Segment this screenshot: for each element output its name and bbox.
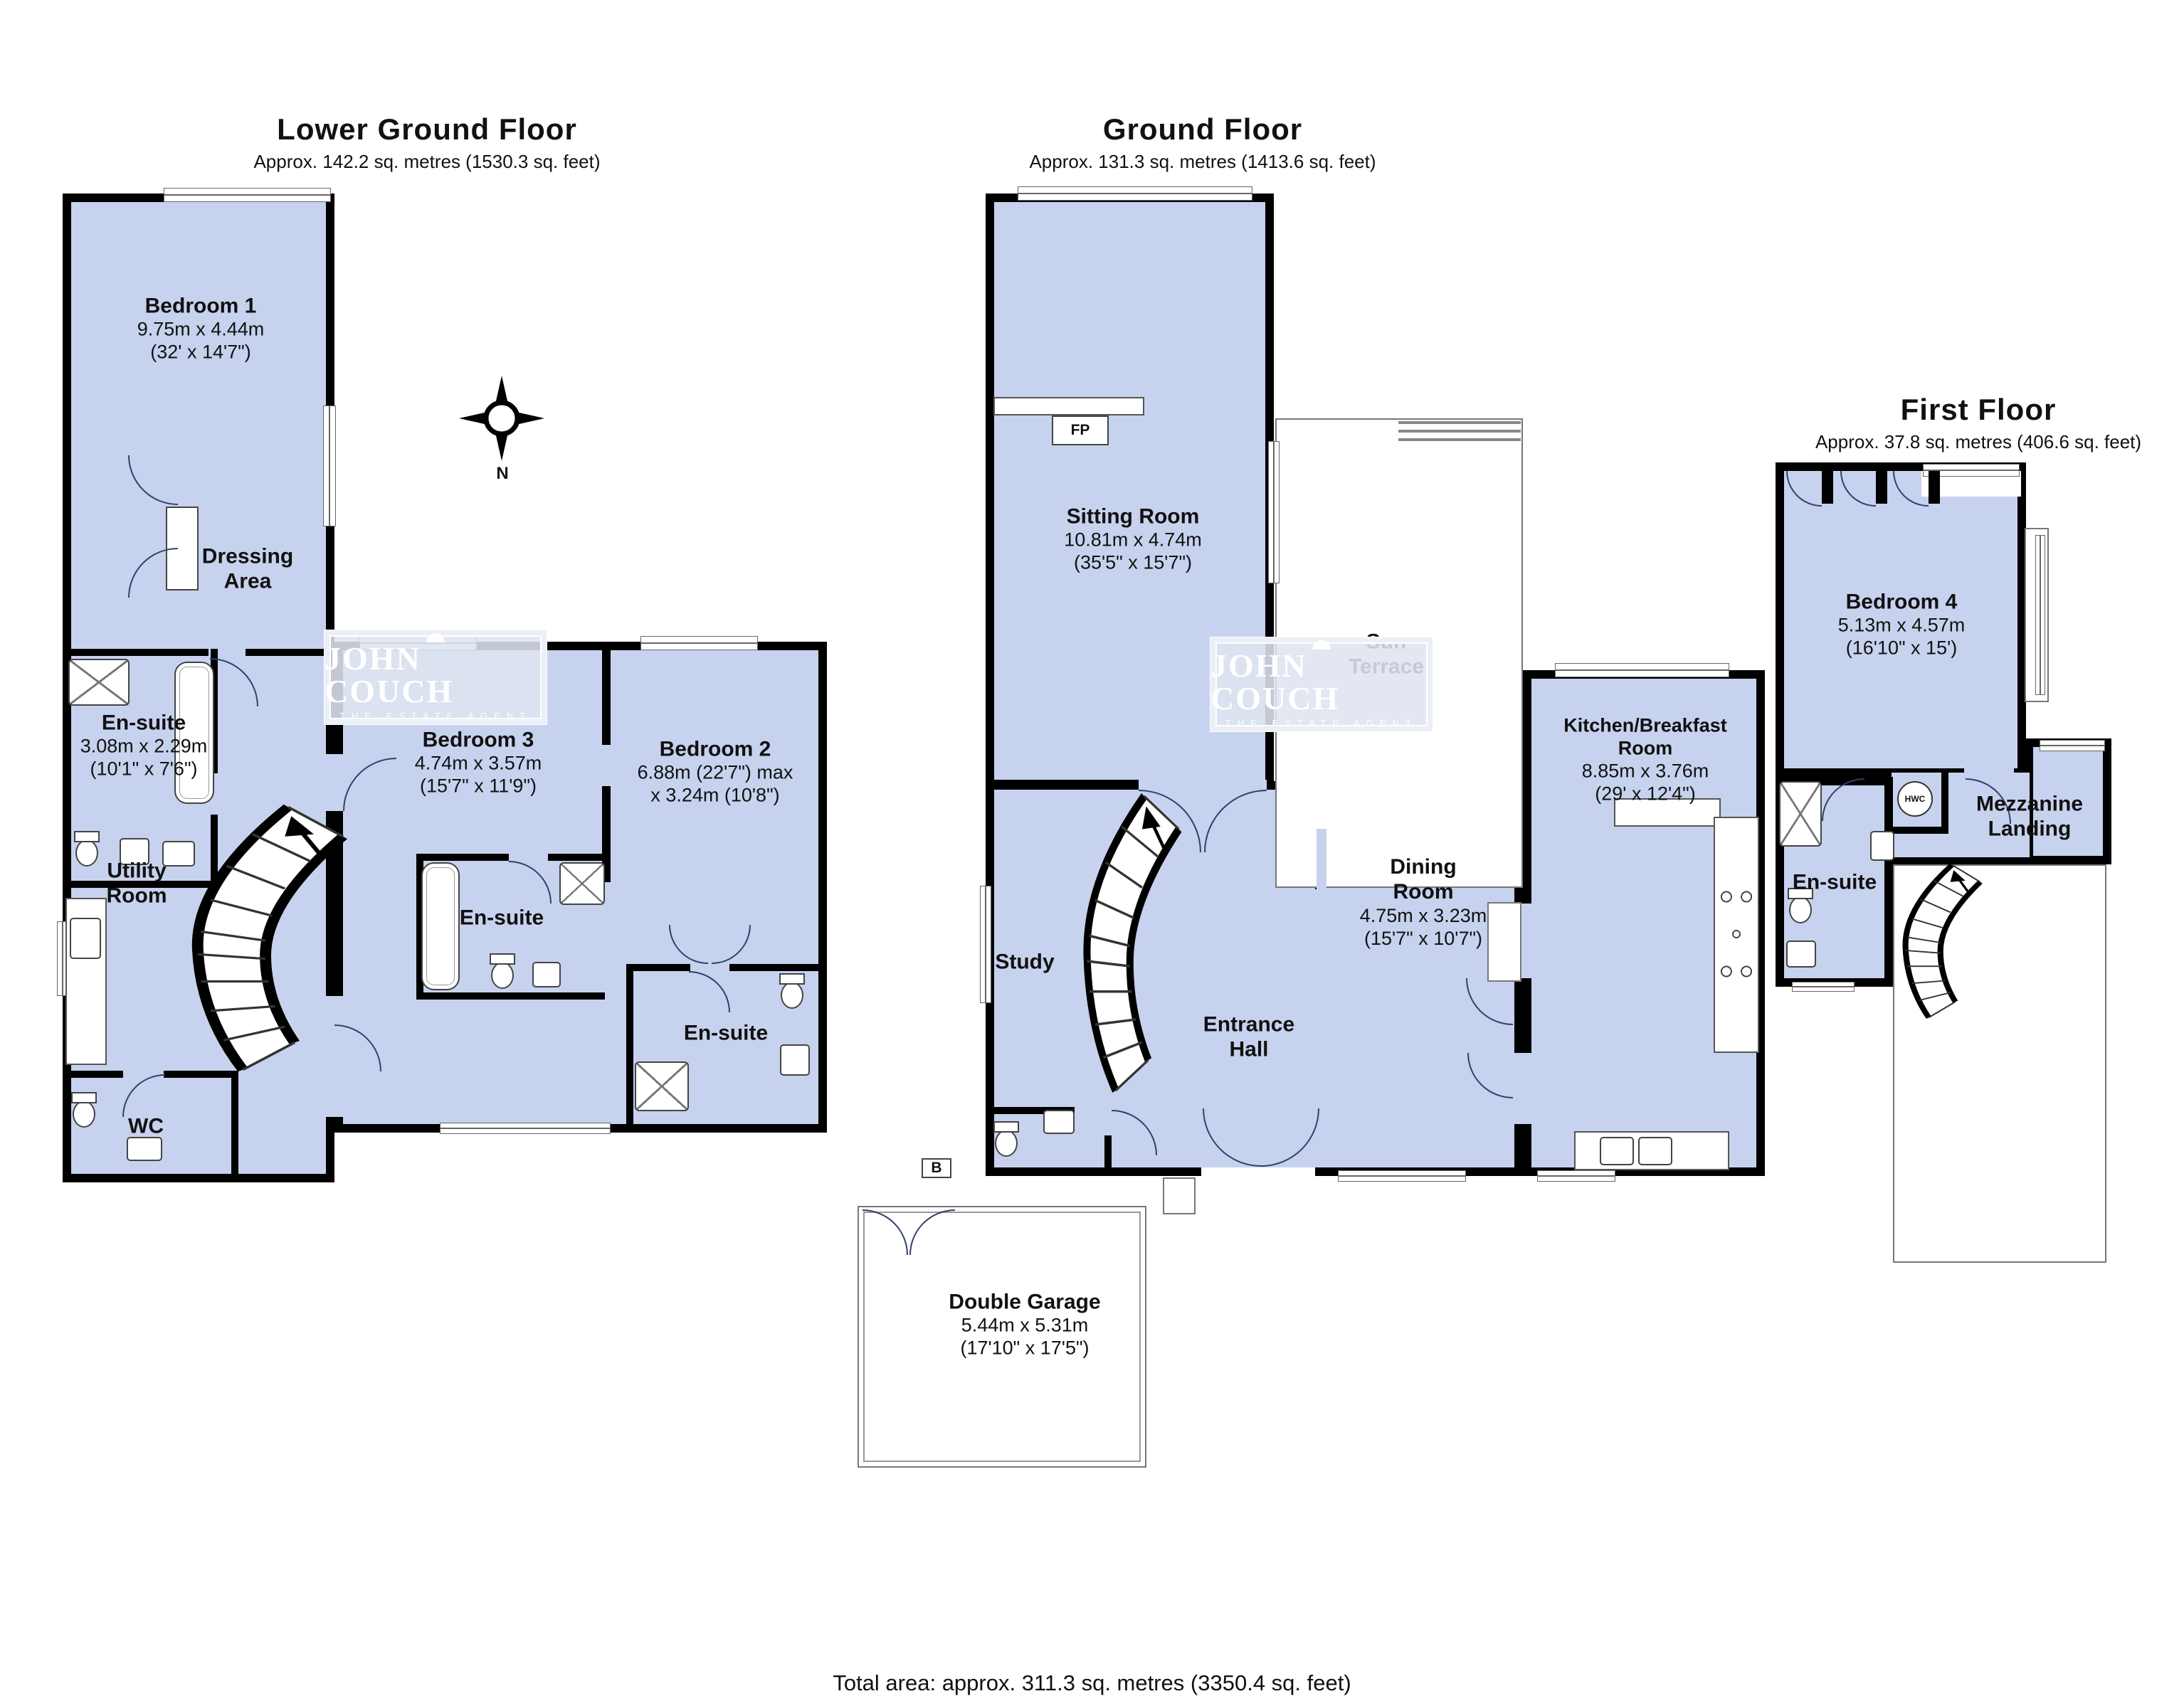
watermark: JOHN COUCH THE ESTATE AGENT [1210, 637, 1433, 732]
room-label-ensuite4: En-suite [1778, 869, 1892, 894]
room-dims-imperial: (16'10" x 15') [1809, 637, 1994, 660]
watermark: JOHN COUCH THE ESTATE AGENT [324, 630, 547, 725]
bidet [1786, 941, 1816, 968]
room-name: En-suite [1778, 869, 1892, 894]
landing-door-opening [1964, 768, 2014, 778]
basin [1870, 831, 1894, 861]
room-label-bedroom4: Bedroom 4 5.13m x 4.57m (16'10" x 15') [1809, 589, 1994, 659]
watermark-name: JOHN COUCH [325, 642, 547, 708]
watermark-name: JOHN COUCH [1210, 650, 1433, 715]
watermark-sun-logo [1312, 640, 1331, 650]
room-label-landing: Mezzanine Landing [1951, 792, 2108, 842]
lgf-curved-stairs [162, 802, 356, 1074]
wardrobe-divider [1876, 471, 1887, 504]
wardrobe-divider [1822, 471, 1833, 504]
ff-title: First Floor [1779, 393, 2178, 427]
room-dims-metric: 5.13m x 4.57m [1809, 615, 1994, 637]
room-name: Bedroom 4 [1809, 589, 1994, 614]
shower [1779, 781, 1822, 847]
room-name: Mezzanine Landing [1951, 792, 2108, 842]
wall [1941, 773, 1948, 832]
ensuite-window [1792, 982, 1855, 992]
wardrobe-divider [1929, 471, 1940, 504]
floorplan-canvas: Lower Ground Floor Approx. 142.2 sq. met… [0, 0, 2184, 1706]
hot-water-cylinder-marker: HWC [1897, 781, 1933, 817]
gf-curved-stairs [1065, 791, 1187, 1096]
landing-window [2040, 740, 2105, 751]
watermark-sun-logo [426, 633, 445, 642]
watermark-tagline: THE ESTATE AGENT [339, 711, 532, 721]
wall [1884, 773, 1892, 832]
bay-window-glass [2035, 535, 2045, 695]
total-area-text: Total area: approx. 311.3 sq. metres (33… [0, 1670, 2184, 1696]
watermark-tagline: THE ESTATE AGENT [1225, 718, 1418, 729]
ff-area: Approx. 37.8 sq. metres (406.6 sq. feet) [1765, 431, 2184, 453]
ff-curved-stairs [1887, 862, 1987, 1020]
